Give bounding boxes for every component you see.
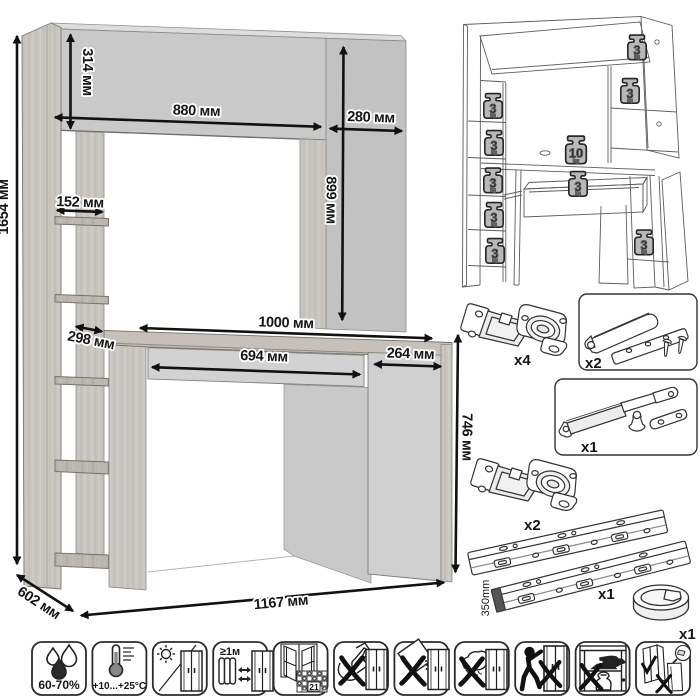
svg-text:1654 мм: 1654 мм xyxy=(0,179,12,234)
svg-text:≥1м: ≥1м xyxy=(220,646,240,658)
svg-text:694 мм: 694 мм xyxy=(240,348,288,366)
svg-text:1000 мм: 1000 мм xyxy=(258,314,314,332)
svg-text:x2: x2 xyxy=(585,355,602,372)
svg-text:152 мм: 152 мм xyxy=(56,194,104,212)
svg-text:350mm: 350mm xyxy=(480,580,492,617)
svg-text:264 мм: 264 мм xyxy=(386,346,434,364)
svg-text:x4: x4 xyxy=(514,352,531,369)
svg-text:314 мм: 314 мм xyxy=(79,48,95,96)
svg-text:880 мм: 880 мм xyxy=(172,103,220,121)
svg-text:x1: x1 xyxy=(598,586,615,603)
svg-text:746 мм: 746 мм xyxy=(459,413,475,461)
svg-text:x1: x1 xyxy=(679,626,696,643)
svg-text:+10...+25°C: +10...+25°C xyxy=(93,681,146,692)
svg-text:x1: x1 xyxy=(581,439,598,456)
svg-text:899 мм: 899 мм xyxy=(323,176,339,224)
svg-text:280 мм: 280 мм xyxy=(347,109,395,127)
svg-text:60-70%: 60-70% xyxy=(38,678,80,692)
svg-text:x2: x2 xyxy=(524,517,541,534)
svg-text:21: 21 xyxy=(309,682,319,692)
svg-text:kg: kg xyxy=(573,158,579,164)
